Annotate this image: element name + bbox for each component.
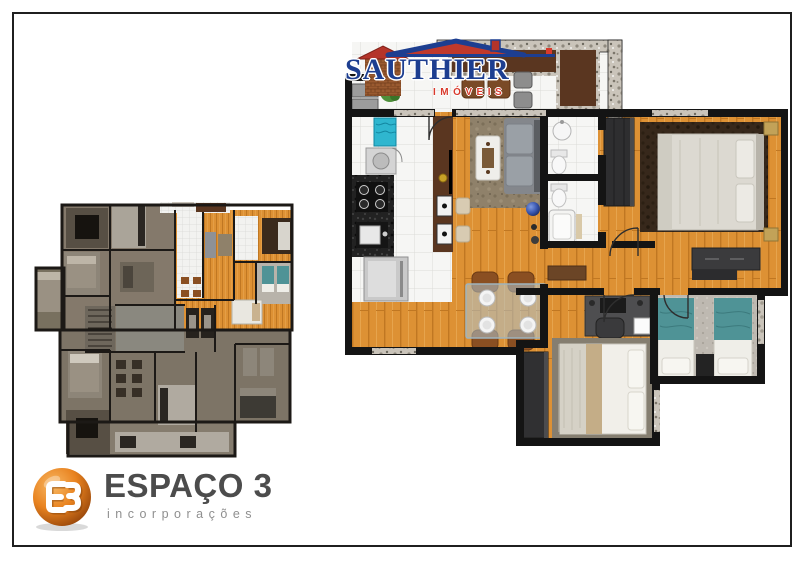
pillow [628, 350, 644, 388]
single-bed [714, 298, 752, 378]
double-bed [658, 134, 764, 230]
espaco-sphere-icon [30, 464, 96, 534]
double-bed [560, 344, 646, 434]
pillow [662, 358, 690, 374]
stool [456, 226, 470, 242]
headboard [756, 134, 764, 230]
sauthier-logo: SAUTHIER IMÓVEIS [343, 38, 558, 100]
espaco-tagline: incorporações [107, 507, 257, 521]
brochure-canvas: SAUTHIER IMÓVEIS ESPAÇO 3 [0, 0, 808, 563]
mini-theater-table [75, 215, 99, 239]
pillow [736, 140, 754, 178]
pillow [736, 184, 754, 222]
basin [553, 122, 571, 140]
console [548, 266, 586, 280]
nightstand [764, 228, 778, 241]
shelf [634, 318, 650, 334]
wardrobe [604, 118, 634, 206]
building-floor-plan [28, 198, 296, 464]
clock [439, 174, 447, 182]
pillow [718, 358, 748, 374]
mini-sofa [205, 232, 216, 258]
towel [576, 214, 582, 239]
espaco-wordmark: ESPAÇO 3 [104, 469, 272, 502]
side-table [526, 202, 540, 216]
nightstand [764, 122, 778, 135]
pillow [628, 392, 644, 430]
sauthier-tagline: IMÓVEIS [433, 87, 506, 98]
bed-runner [586, 344, 602, 434]
nightstand [696, 354, 714, 378]
dining-area [466, 272, 546, 350]
espaco3-logo: ESPAÇO 3 incorporações [30, 462, 290, 534]
sofa [504, 118, 544, 194]
sauthier-wordmark: SAUTHIER [345, 55, 560, 85]
dresser [692, 248, 760, 270]
mini-hall [116, 304, 184, 352]
stool [456, 198, 470, 214]
desk-chair [596, 318, 624, 338]
mini-twin-bottom [243, 348, 257, 376]
coffee-table [476, 136, 500, 180]
